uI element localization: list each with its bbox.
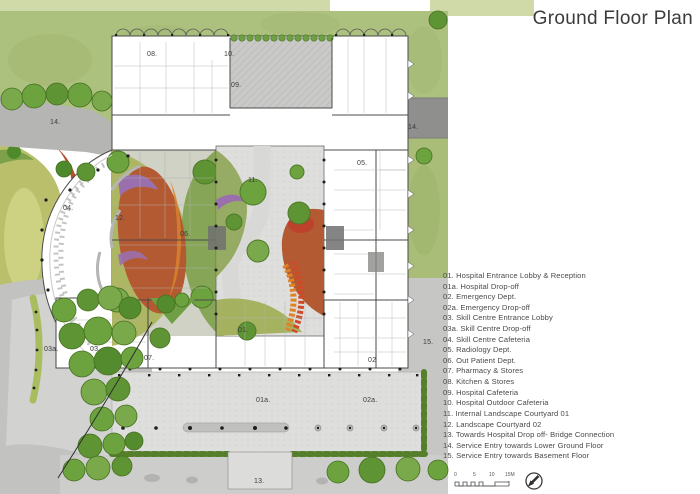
legend-item: 02a. Emergency Drop-off — [443, 303, 614, 314]
plan-label-08: 08. — [147, 51, 157, 58]
plan-label-13: 13. — [254, 478, 264, 485]
legend-item: 13. Towards Hospital Drop off- Bridge Co… — [443, 430, 614, 441]
plan-label-02a: 02a. — [363, 397, 377, 404]
legend-item: 01. Hospital Entrance Lobby & Reception — [443, 271, 614, 282]
plan-label-10: 10. — [224, 51, 234, 58]
legend: 01. Hospital Entrance Lobby & Reception … — [443, 271, 614, 462]
plan-label-05: 05. — [357, 160, 367, 167]
plan-label-12: 12. — [115, 215, 125, 222]
page-title: Ground Floor Plan — [533, 8, 693, 30]
outdoor-cafeteria-zone — [230, 35, 333, 108]
legend-item: 02. Emergency Dept. — [443, 292, 614, 303]
plan-label-11: 11. — [248, 177, 258, 184]
plan-label-06: 06. — [180, 231, 190, 238]
legend-item: 11. Internal Landscape Courtyard 01 — [443, 409, 614, 420]
legend-item: 06. Out Patient Dept. — [443, 356, 614, 367]
north-arrow-icon — [523, 470, 545, 492]
legend-item: 08. Kitchen & Stores — [443, 377, 614, 388]
scale-tick-15: 15M — [505, 472, 515, 478]
scale-tick-5: 5 — [473, 472, 476, 478]
plan-label-03: 03. — [90, 346, 100, 353]
plan-label-15: 15. — [423, 339, 433, 346]
legend-item: 04. Skill Centre Cafeteria — [443, 335, 614, 346]
plan-label-04: 04. — [63, 205, 73, 212]
legend-item: 14. Service Entry towards Lower Ground F… — [443, 441, 614, 452]
legend-item: 10. Hospital Outdoor Cafeteria — [443, 398, 614, 409]
legend-item: 03a. Skill Centre Drop-off — [443, 324, 614, 335]
plan-label-14-left: 14. — [50, 119, 60, 126]
legend-item: 05. Radiology Dept. — [443, 345, 614, 356]
ground-floor-plan-sheet: Ground Floor Plan 01. Hospital Entrance … — [0, 0, 700, 494]
plan-label-01: 01. — [238, 327, 248, 334]
plan-label-09: 09. — [231, 82, 241, 89]
plan-label-07: 07. — [144, 355, 154, 362]
legend-item: 03. Skill Centre Entrance Lobby — [443, 313, 614, 324]
courtyard-01 — [216, 146, 324, 340]
legend-item: 12. Landscape Courtyard 02 — [443, 420, 614, 431]
plan-label-03a: 03a. — [44, 346, 58, 353]
plan-label-14-right: 14. — [408, 124, 418, 131]
legend-item: 09. Hospital Cafeteria — [443, 388, 614, 399]
plan-label-01a: 01a. — [256, 397, 270, 404]
legend-item: 15. Service Entry towards Basement Floor — [443, 451, 614, 462]
legend-item: 07. Pharmacy & Stores — [443, 366, 614, 377]
scale-tick-0: 0 — [454, 472, 457, 478]
scale-tick-10: 10 — [489, 472, 495, 478]
plan-label-02: 02 — [368, 357, 376, 364]
legend-item: 01a. Hospital Drop-off — [443, 282, 614, 293]
